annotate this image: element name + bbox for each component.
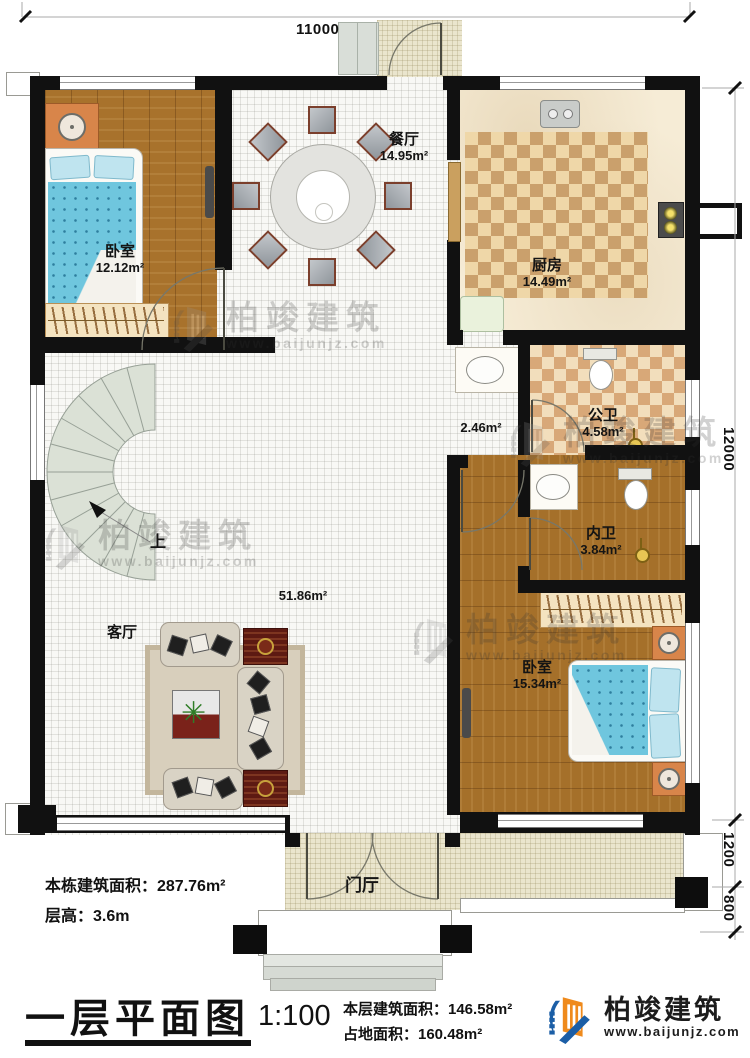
room-name: 内卫 [555, 526, 647, 542]
stove [658, 202, 684, 238]
toilet-tank [583, 348, 617, 360]
sofa-top [160, 622, 240, 667]
floor-plan: ✳ [0, 0, 750, 1058]
kitchen-door-leaf [448, 162, 461, 242]
room-label-living-name: 客厅 [98, 625, 146, 641]
sofa-pillow [248, 716, 270, 738]
title-areas: 本层建筑面积：146.58m² 占地面积：160.48m² [343, 997, 512, 1047]
table-medallion [257, 638, 274, 655]
room-name: 厨房 [500, 258, 594, 274]
vanity-sink [466, 356, 504, 384]
tv [462, 688, 471, 738]
terrace-rail-bottom [460, 898, 685, 913]
room-label-bedroom1: 卧室 12.12m² [73, 244, 167, 276]
nightstand [652, 762, 686, 796]
bed-pillow [649, 667, 681, 713]
bed-pillow [93, 155, 134, 180]
watermark: 柏竣建筑 www.baijunjz.com [168, 300, 387, 352]
lamp [658, 768, 680, 790]
faucet [563, 109, 573, 119]
dining-chair [232, 182, 260, 210]
coffee-table: ✳ [172, 690, 220, 739]
dimension-top: 11000 [296, 21, 339, 38]
flue-box [695, 203, 742, 239]
wardrobe-rail [48, 320, 164, 321]
dining-chair [308, 258, 336, 286]
window [500, 76, 645, 90]
wardrobe-rail [543, 609, 682, 610]
scale-label: 1:100 [258, 1000, 331, 1033]
tv [205, 166, 214, 218]
wall-segment [518, 566, 530, 580]
room-area: 14.95m² [357, 148, 451, 164]
fridge [460, 296, 504, 332]
terrace-floor [460, 833, 683, 898]
floor-area-label: 本层建筑面积：146.58m² [343, 997, 512, 1022]
wall-segment [460, 455, 468, 468]
sofa-pillow [210, 634, 233, 657]
wall-segment [445, 833, 460, 847]
corner-block [18, 805, 56, 833]
wardrobe [45, 303, 169, 339]
window [57, 817, 285, 831]
burner [664, 207, 677, 220]
sofa-bottom [163, 768, 243, 810]
room-label-public-bath: 公卫 4.58m² [557, 408, 649, 440]
title-underline [25, 1040, 251, 1046]
side-table [243, 770, 288, 807]
plan-notes: 本栋建筑面积：287.76m² 层高：3.6m [45, 872, 226, 932]
side-table [243, 628, 288, 665]
room-area: 4.58m² [557, 424, 649, 440]
wall-segment [447, 240, 460, 330]
kitchen-sink [540, 100, 580, 128]
window [30, 385, 45, 480]
sofa-pillow [249, 737, 272, 760]
wall-segment [518, 460, 530, 517]
bed-pillow [649, 713, 681, 759]
window [685, 490, 700, 545]
window [685, 623, 700, 783]
toilet-bowl [589, 360, 613, 390]
brand-website: www.baijunjz.com [604, 1024, 740, 1039]
room-label-dining: 餐厅 14.95m² [357, 132, 451, 164]
watermark-brand: 柏竣建筑 [226, 301, 387, 335]
note-floor-height: 层高：3.6m [45, 902, 226, 932]
column [233, 925, 267, 954]
dimension-right-lower: 800 [720, 895, 737, 922]
entry-step [270, 978, 436, 991]
room-name: 门厅 [330, 878, 394, 894]
watermark-brand: 柏竣建筑 [466, 613, 627, 647]
plan-title: 一层平面图 [25, 986, 250, 1044]
sofa-pillow [195, 777, 215, 797]
plant: ✳ [181, 699, 206, 729]
room-area: 51.86m² [268, 588, 338, 604]
brand-logo-icon [40, 518, 92, 570]
table-medallion [257, 780, 274, 797]
window [498, 814, 643, 828]
foyer-floor [285, 833, 460, 910]
brand-logo-icon [543, 990, 597, 1044]
watermark-site: www.baijunjz.com [226, 335, 387, 351]
toilet-bowl [624, 480, 648, 510]
dining-chair [308, 106, 336, 134]
window [60, 76, 195, 90]
land-area-label: 占地面积：160.48m² [343, 1022, 512, 1047]
dining-table-dish [315, 203, 333, 221]
wall-segment [503, 330, 700, 345]
bed-pillow [49, 155, 91, 181]
room-name: 餐厅 [357, 132, 451, 148]
sofa-pillow [167, 635, 188, 656]
room-area: 2.46m² [448, 420, 514, 436]
nightstand [45, 103, 99, 151]
brand-name: 柏竣建筑 [604, 996, 740, 1024]
watermark: 柏竣建筑 www.baijunjz.com [408, 612, 627, 664]
dimension-right-upper: 1200 [720, 832, 737, 867]
room-label-hallway: 2.46m² [448, 420, 514, 436]
vanity-sink [536, 474, 570, 500]
room-area: 15.34m² [490, 676, 584, 692]
burner [664, 221, 677, 234]
stair-up-label: 上 [146, 535, 170, 551]
faucet [548, 109, 558, 119]
room-area: 14.49m² [500, 274, 594, 290]
back-landing [377, 20, 462, 77]
sofa-pillow [247, 671, 271, 695]
toilet-tank [618, 468, 652, 480]
column [675, 877, 708, 908]
sofa-pillow [172, 777, 194, 799]
nightstand [652, 626, 686, 660]
porch-apron [258, 910, 452, 956]
brand-logo-icon [168, 300, 220, 352]
room-label-kitchen: 厨房 14.49m² [500, 258, 594, 290]
room-area: 3.84m² [555, 542, 647, 558]
room-label-bedroom2: 卧室 15.34m² [490, 660, 584, 692]
dimension-right-main: 12000 [720, 427, 737, 471]
sofa-pillow [250, 694, 271, 715]
watermark-brand: 柏竣建筑 [98, 519, 259, 553]
note-building-area: 本栋建筑面积：287.76m² [45, 872, 226, 902]
room-name: 上 [146, 535, 170, 551]
wall-segment [215, 76, 232, 270]
brand-logo-icon [408, 612, 460, 664]
wall-segment [685, 545, 700, 623]
lamp [58, 113, 86, 141]
room-label-ensuite-bath: 内卫 3.84m² [555, 526, 647, 558]
wall-segment [285, 833, 300, 847]
room-label-living-area: 51.86m² [268, 588, 338, 604]
room-area: 12.12m² [73, 260, 167, 276]
lamp [658, 632, 680, 654]
room-name: 客厅 [98, 625, 146, 641]
watermark-site: www.baijunjz.com [98, 553, 259, 569]
sofa-right [237, 667, 284, 770]
room-name: 卧室 [73, 244, 167, 260]
brand-logo: 柏竣建筑 www.baijunjz.com [543, 990, 740, 1044]
wall-segment [518, 580, 685, 593]
back-steps [338, 22, 379, 75]
wall-segment [447, 330, 463, 345]
column [440, 925, 472, 953]
dining-chair [384, 182, 412, 210]
room-name: 卧室 [490, 660, 584, 676]
room-label-foyer: 门厅 [330, 878, 394, 894]
sofa-pillow [214, 776, 237, 799]
room-name: 公卫 [557, 408, 649, 424]
watermark-site: www.baijunjz.com [563, 450, 724, 466]
sofa-pillow [189, 633, 209, 653]
